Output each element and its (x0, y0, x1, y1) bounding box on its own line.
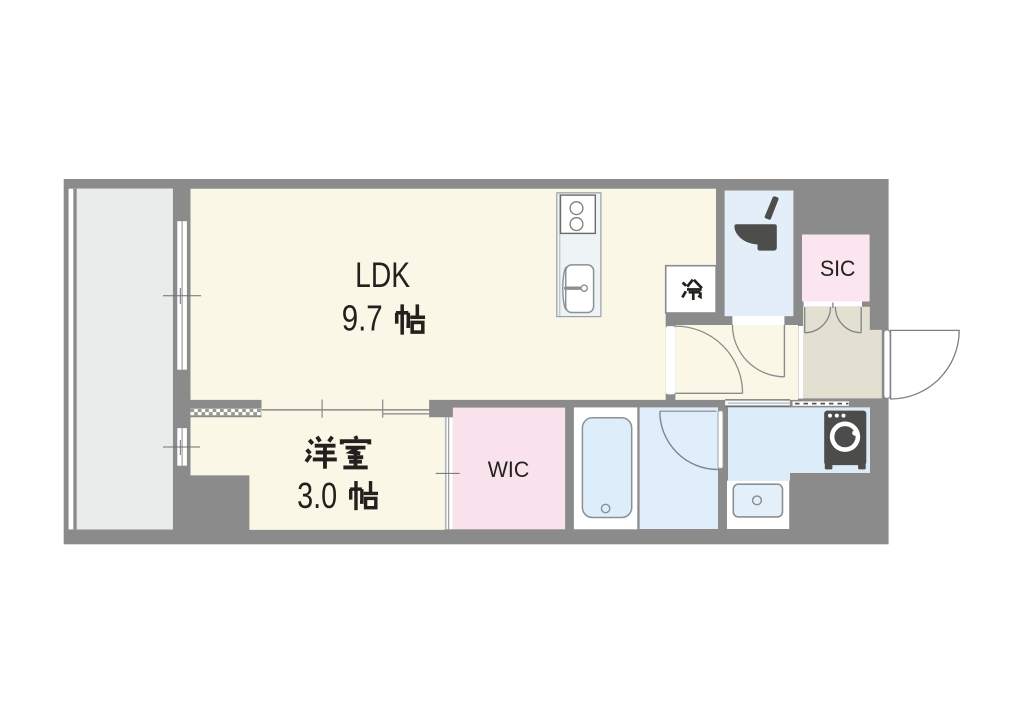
svg-text:3.0: 3.0 (297, 475, 337, 516)
svg-text:LDK: LDK (355, 256, 410, 295)
svg-text:SIC: SIC (820, 256, 856, 281)
svg-text:9.7: 9.7 (342, 298, 383, 339)
svg-text:WIC: WIC (488, 457, 530, 482)
